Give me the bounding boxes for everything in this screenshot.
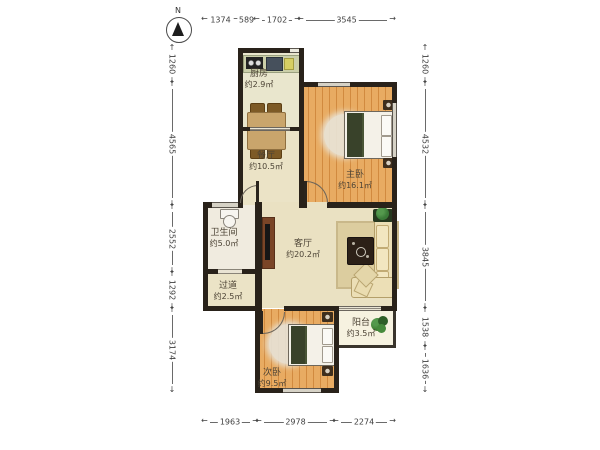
arrow-left-icon: ← [255, 416, 262, 425]
arrow-up-icon: ↑ [422, 79, 429, 88]
wall-segment [327, 202, 397, 208]
room-name: 过道 [219, 281, 237, 291]
bed-pillow [322, 328, 333, 345]
bed-pillow [381, 136, 392, 157]
arrow-up-icon: ↑ [169, 269, 176, 278]
arrow-right-icon: → [389, 416, 396, 425]
dimension-value: 2552 [168, 226, 177, 250]
dimension-value: 1374 [208, 16, 232, 25]
table-decor [356, 247, 366, 257]
room-name: 主卧 [346, 170, 364, 180]
tv-cabinet [262, 217, 275, 269]
bed-pillow [322, 346, 333, 363]
dimension-value: 4532 [421, 131, 430, 155]
balcony-wall [337, 345, 395, 348]
toilet-bowl [223, 215, 236, 228]
window [283, 388, 321, 393]
master-bedroom-door-leaf [304, 181, 307, 203]
room-area: 约16.1㎡ [338, 181, 372, 191]
dimension-value: 3545 [334, 16, 358, 25]
arrow-up-icon: ↑ [169, 43, 176, 52]
dimension-value: 1260 [421, 52, 430, 76]
dimension-value: 1702 [265, 16, 289, 25]
room-area: 约5.0㎡ [210, 239, 239, 249]
window [318, 82, 350, 87]
wall-segment [238, 48, 243, 208]
dimension-left: ↑ 4565 ↓ [165, 82, 179, 205]
plant [373, 209, 393, 222]
room-area: 约3.5㎡ [347, 329, 376, 339]
arrow-up-icon: ↑ [422, 43, 429, 52]
bathroom-label: 卫生间 约5.0㎡ [210, 228, 239, 248]
dimension-top: ← 1702 → [255, 13, 299, 27]
arrow-right-icon: → [389, 14, 396, 23]
plant-foliage [376, 207, 389, 220]
dimension-value: 1636 [421, 356, 430, 380]
arrow-up-icon: ↑ [422, 343, 429, 352]
dimension-left: ↑ 3174 ↓ [165, 308, 179, 391]
room-name: 卫生间 [210, 228, 237, 238]
wall-segment [284, 306, 339, 311]
kitchen-label: 厨房 约2.9㎡ [245, 69, 274, 89]
arrow-left-icon: ← [332, 416, 339, 425]
dimension-right: ↑ 1260 ↓ [418, 46, 432, 82]
bed-blanket [347, 113, 364, 157]
dining-label: 餐厅 约10.5㎡ [249, 151, 283, 171]
cutting-board [284, 58, 294, 70]
floor-plan: N [0, 0, 600, 450]
arrow-up-icon: ↑ [169, 305, 176, 314]
room-name: 餐厅 [257, 151, 275, 161]
second-bed [288, 324, 336, 366]
room-name: 客厅 [294, 239, 312, 249]
wall-segment [203, 202, 208, 311]
kitchen-opening [250, 127, 290, 131]
dimension-top: ← 3545 → [299, 13, 394, 27]
arrow-up-icon: ↑ [422, 202, 429, 211]
table-decor-dot [352, 242, 355, 245]
arrow-down-icon: ↓ [422, 385, 429, 394]
sofa-cushion [376, 248, 389, 271]
dimension-value: 3845 [421, 244, 430, 268]
compass-arrow [172, 22, 184, 36]
dining-table [247, 112, 286, 150]
hallway-label: 过道 约2.5㎡ [214, 281, 243, 301]
window [392, 103, 397, 157]
room-name: 次卧 [263, 368, 281, 378]
arrow-down-icon: ↓ [169, 385, 176, 394]
balcony-sliding-door [339, 306, 381, 311]
dimension-right: ↑ 1636 ↓ [418, 346, 432, 391]
wall-segment [255, 202, 262, 308]
second-bedroom-door-leaf [260, 311, 263, 334]
balcony-label: 阳台 约3.5㎡ [347, 318, 376, 338]
coffee-table [347, 237, 374, 265]
dimension-right: ↑ 1538 ↓ [418, 308, 432, 346]
arrow-up-icon: ↑ [169, 79, 176, 88]
arrow-up-icon: ↑ [422, 305, 429, 314]
dimension-value: 2274 [352, 418, 376, 427]
nightstand [322, 312, 333, 322]
living-label: 客厅 约20.2㎡ [286, 239, 320, 259]
arrow-left-icon: ← [201, 14, 208, 23]
plant-foliage [377, 324, 386, 333]
dimension-left: ↑ 1260 ↓ [165, 46, 179, 82]
room-area: 约9.5㎡ [258, 379, 287, 389]
compass-north-label: N [160, 6, 196, 16]
second-bedroom-label: 次卧 约9.5㎡ [258, 368, 287, 388]
dimension-value: 1292 [168, 278, 177, 302]
room-name: 阳台 [352, 318, 370, 328]
dimension-bottom: ← 2274 → [334, 415, 394, 429]
arrow-up-icon: ↑ [169, 202, 176, 211]
bathroom-door [218, 269, 242, 274]
room-area: 约2.5㎡ [214, 292, 243, 302]
wall-segment [334, 306, 339, 393]
dimension-top: ← 1374 → [203, 13, 238, 27]
table-decor-dot [366, 255, 369, 258]
dimension-value: 1538 [421, 315, 430, 339]
dimension-bottom: ← 2978 → [257, 415, 334, 429]
master-bedroom-label: 主卧 约16.1㎡ [338, 170, 372, 190]
kitchen-vent-window [290, 48, 299, 53]
dimension-value: 2978 [283, 418, 307, 427]
dimension-right: ↑ 4532 ↓ [418, 82, 432, 205]
arrow-left-icon: ← [201, 416, 208, 425]
stove [246, 57, 263, 69]
dimension-value: 3174 [168, 337, 177, 361]
arrow-left-icon: ← [297, 14, 304, 23]
tv-screen [265, 224, 270, 260]
dining-door-leaf [256, 181, 259, 203]
dimension-value: 4565 [168, 131, 177, 155]
dimension-bottom: ← 1963 → [203, 415, 257, 429]
dimension-value: 1260 [168, 52, 177, 76]
north-compass-icon: N [160, 6, 196, 48]
nightstand [322, 366, 333, 376]
bed-pillow [381, 115, 392, 136]
master-bed [344, 111, 394, 159]
sofa-cushion [376, 225, 389, 248]
window [212, 202, 238, 208]
bed-blanket [291, 326, 307, 364]
arrow-left-icon: ← [253, 14, 260, 23]
room-area: 约10.5㎡ [249, 162, 283, 172]
room-area: 约20.2㎡ [286, 250, 320, 260]
dimension-value: 1963 [218, 418, 242, 427]
room-name: 厨房 [250, 69, 268, 79]
wall-segment [203, 306, 262, 311]
dimension-right: ↑ 3845 ↓ [418, 205, 432, 308]
dimension-left: ↑ 2552 ↓ [165, 205, 179, 272]
dimension-left: ↑ 1292 ↓ [165, 272, 179, 308]
balcony-wall [393, 311, 396, 348]
room-area: 约2.9㎡ [245, 80, 274, 90]
